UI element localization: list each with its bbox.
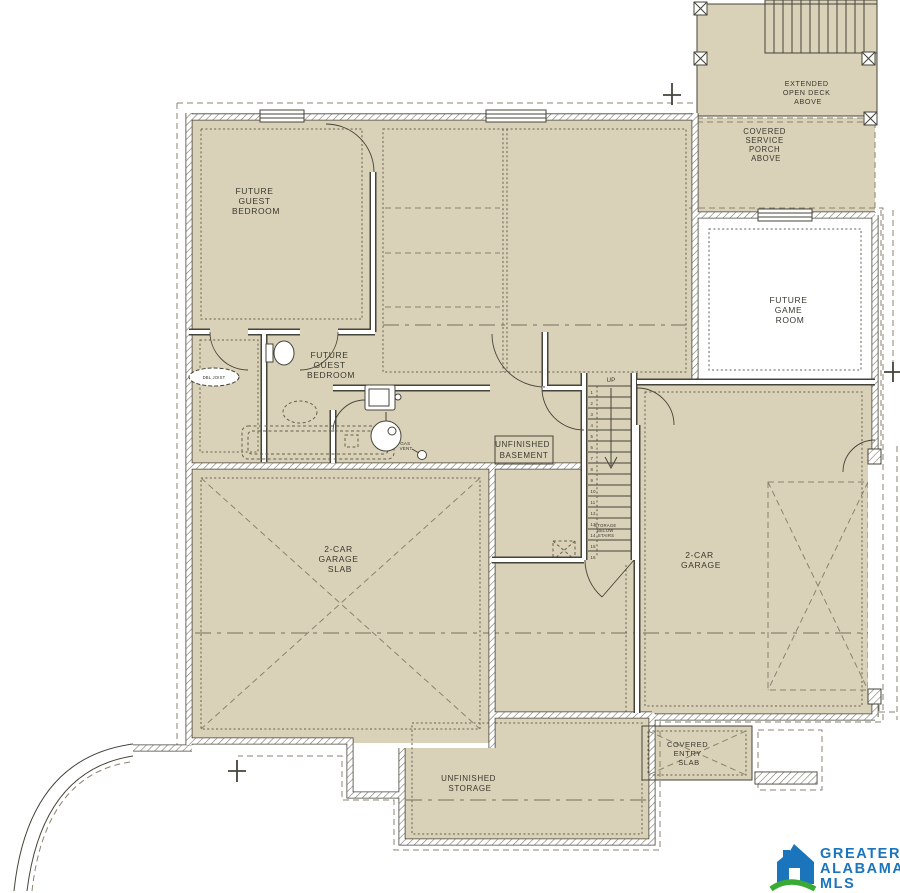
window xyxy=(486,110,546,122)
garage-door-opening xyxy=(868,449,882,704)
label-guest-bedroom-lower: FUTURE GUEST BEDROOM xyxy=(307,350,355,380)
svg-text:GREATER: GREATER xyxy=(820,846,900,862)
stair-tread-number: 12 xyxy=(591,511,597,516)
stair-tread-number: 8 xyxy=(591,467,594,472)
mls-green-swoosh xyxy=(771,882,815,889)
stair-tread-number: 4 xyxy=(591,423,594,428)
stair-tread-number: 9 xyxy=(591,478,594,483)
stair-tread-number: 2 xyxy=(591,401,594,406)
stair-tread-number: 5 xyxy=(591,434,594,439)
label-future-game-room: FUTURE GAME ROOM xyxy=(769,295,810,325)
stair-tread-number: 14 xyxy=(591,533,597,538)
stoop-wall xyxy=(755,772,817,784)
stair-tread-number: 7 xyxy=(591,456,594,461)
window xyxy=(758,209,812,221)
stair-tread-number: 15 xyxy=(591,544,597,549)
svg-text:MLS: MLS xyxy=(820,876,855,892)
stair-tread-number: 10 xyxy=(591,489,597,494)
stair-tread-number: 6 xyxy=(591,445,594,450)
label-unfinished-storage: UNFINISHED STORAGE xyxy=(441,774,499,793)
floor-plan-drawing: 12345678910111213141516 FUTURE GUEST BED… xyxy=(0,0,900,893)
stair-tread-number: 16 xyxy=(591,555,597,560)
label-gas-vent: GAS VENT xyxy=(400,441,413,451)
deck-stairs-floor xyxy=(765,0,877,53)
window xyxy=(260,110,304,122)
svg-text:ALABAMA: ALABAMA xyxy=(820,861,900,877)
label-garage-right: 2-CAR GARAGE xyxy=(681,550,721,570)
gas-vent-cap xyxy=(418,451,427,460)
label-up: UP xyxy=(607,378,616,384)
label-guest-bedroom-upper: FUTURE GUEST BEDROOM xyxy=(232,186,280,216)
mls-house-icon xyxy=(771,844,815,889)
label-dbl-joist: DBL JOIST xyxy=(203,375,226,380)
stair-tread-number: 1 xyxy=(591,390,594,395)
stair-tread-number: 11 xyxy=(591,500,596,505)
curved-retaining-wall xyxy=(14,744,133,891)
stair-tread-number: 3 xyxy=(591,412,594,417)
mls-logo: GREATER ALABAMA MLS xyxy=(771,844,900,892)
toilet xyxy=(266,341,294,365)
floor-plan-page: 12345678910111213141516 FUTURE GUEST BED… xyxy=(0,0,900,893)
